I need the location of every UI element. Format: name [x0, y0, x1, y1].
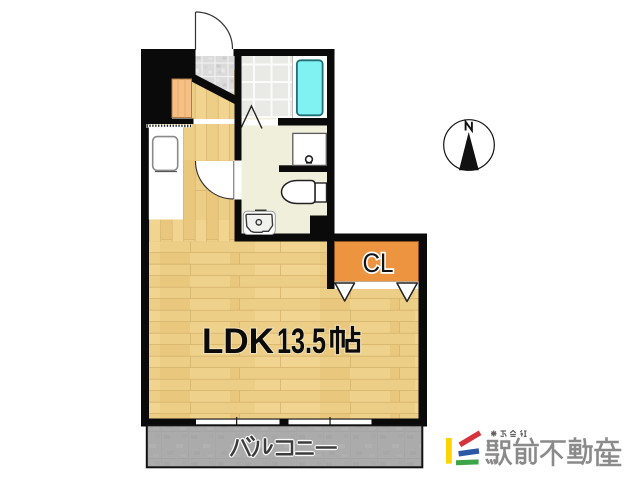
svg-text:CL: CL: [363, 248, 394, 278]
svg-text:LDK13.5: LDK13.5: [202, 322, 326, 361]
